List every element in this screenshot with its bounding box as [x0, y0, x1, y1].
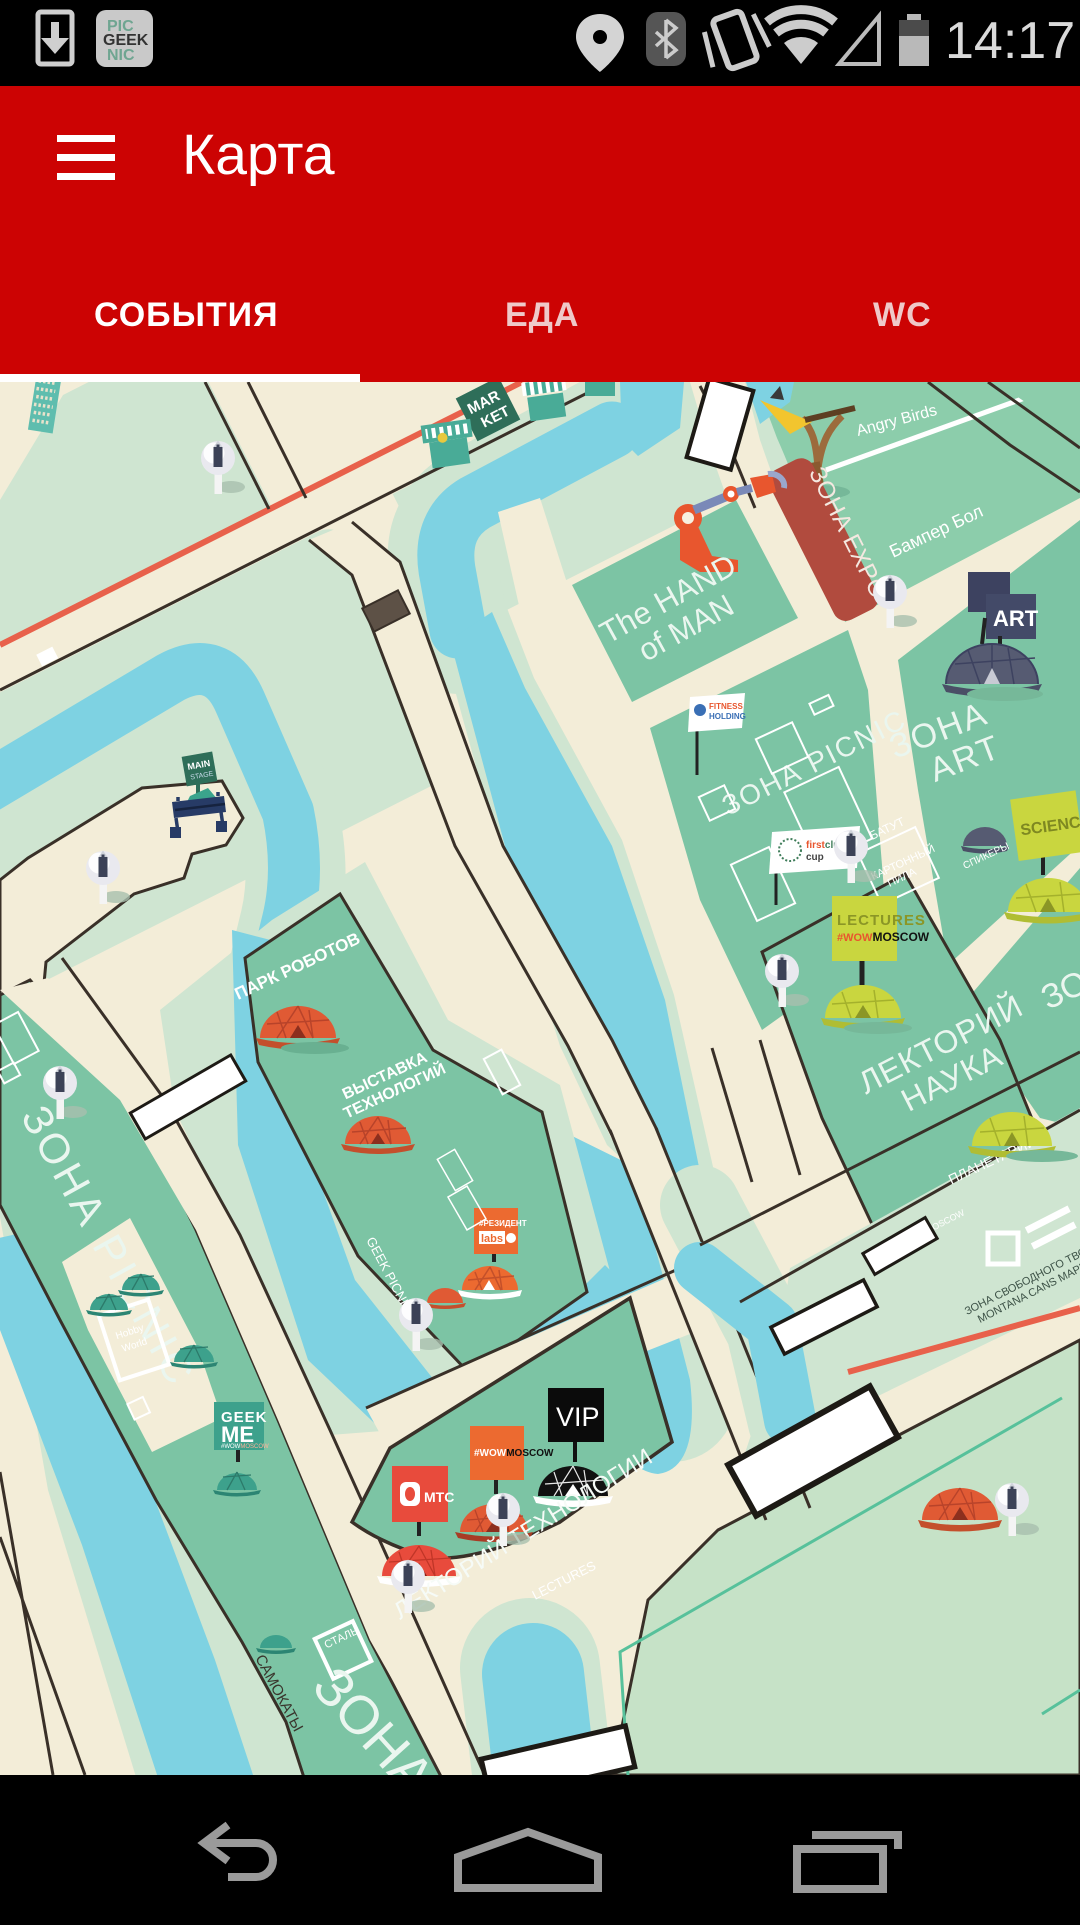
svg-text:NIC: NIC — [107, 47, 135, 64]
svg-text:МТС: МТС — [424, 1489, 454, 1505]
svg-text:HOLDING: HOLDING — [709, 712, 746, 721]
svg-text:ART: ART — [993, 606, 1039, 631]
svg-text:FITNESS: FITNESS — [709, 702, 743, 711]
svg-text:14:17: 14:17 — [945, 12, 1075, 70]
svg-text:labs: labs — [481, 1233, 503, 1245]
svg-text:LECTURES: LECTURES — [837, 912, 926, 929]
svg-text:cup: cup — [806, 852, 824, 863]
svg-text:VIP: VIP — [556, 1402, 600, 1432]
svg-text:#РЕЗИДЕНТ: #РЕЗИДЕНТ — [479, 1219, 527, 1228]
svg-text:#WOWMOSCOW: #WOWMOSCOW — [837, 930, 930, 944]
svg-text:#WOWMOSCOW: #WOWMOSCOW — [474, 1448, 554, 1459]
svg-text:#WOWMOSCOW: #WOWMOSCOW — [221, 1444, 269, 1450]
